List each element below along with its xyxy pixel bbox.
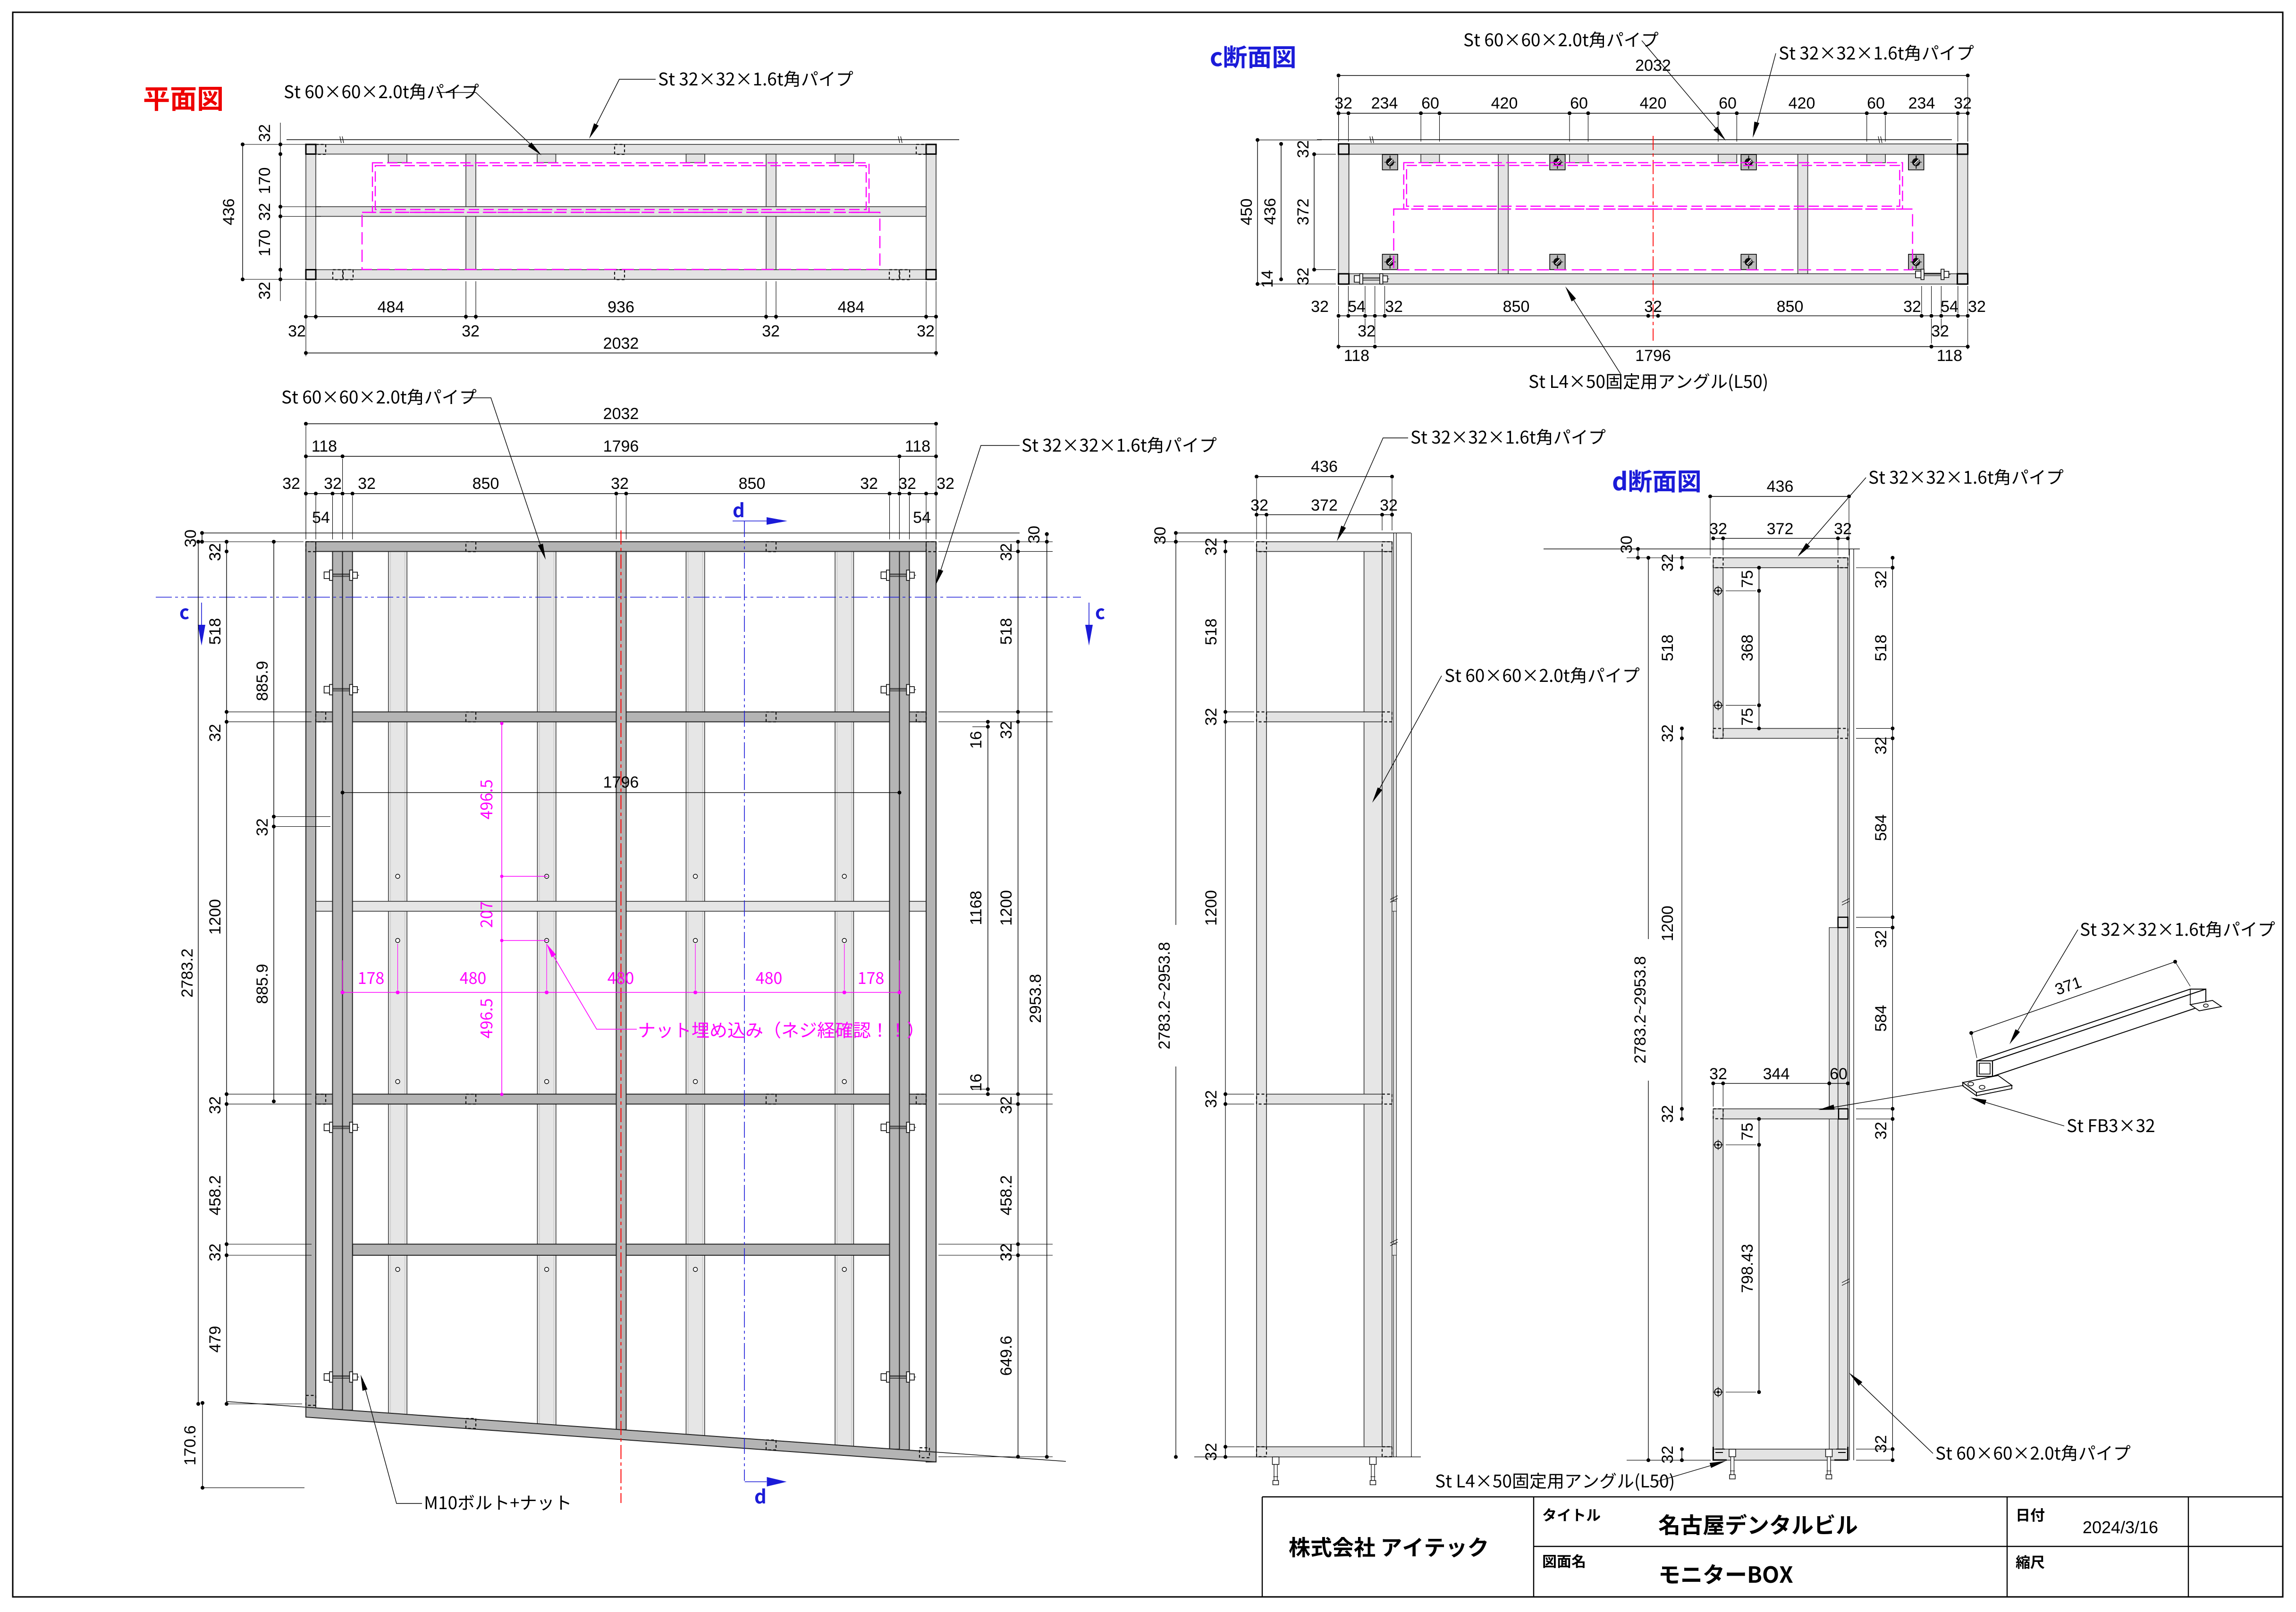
svg-text:850: 850 [739,475,766,493]
svg-text:885.9: 885.9 [253,964,271,1004]
svg-text:32: 32 [462,322,480,340]
svg-text:170: 170 [256,168,274,194]
svg-text:1796: 1796 [603,437,639,455]
svg-text:32: 32 [997,721,1015,739]
svg-text:1200: 1200 [997,890,1015,926]
svg-text:372: 372 [1311,496,1338,514]
svg-text:32: 32 [206,543,224,561]
svg-text:32: 32 [358,475,376,493]
svg-text:518: 518 [1202,619,1220,646]
svg-text:32: 32 [1380,496,1398,514]
svg-text:1796: 1796 [603,773,639,791]
svg-text:30: 30 [182,529,200,547]
svg-text:420: 420 [1640,94,1667,112]
svg-text:936: 936 [608,298,634,316]
svg-text:32: 32 [282,475,300,493]
svg-text:32: 32 [1709,1065,1727,1083]
svg-text:32: 32 [1294,140,1312,158]
svg-text:32: 32 [1202,1443,1220,1461]
svg-text:649.6: 649.6 [997,1335,1015,1376]
svg-text:118: 118 [312,437,337,455]
svg-text:234: 234 [1908,94,1935,112]
svg-text:420: 420 [1491,94,1518,112]
svg-text:54: 54 [1941,298,1958,316]
svg-text:32: 32 [206,724,224,742]
svg-text:518: 518 [1872,635,1890,662]
svg-text:1168: 1168 [967,890,985,925]
svg-text:32: 32 [1385,298,1403,316]
svg-text:518: 518 [1659,635,1677,662]
svg-text:32: 32 [1834,520,1852,538]
svg-text:32: 32 [288,322,306,340]
svg-text:32: 32 [253,818,271,836]
svg-text:75: 75 [1739,570,1756,588]
svg-text:32: 32 [1659,1446,1677,1464]
svg-text:32: 32 [1644,298,1662,316]
svg-text:32: 32 [324,475,342,493]
svg-text:60: 60 [1719,94,1737,112]
svg-text:32: 32 [1294,268,1312,285]
svg-text:54: 54 [913,509,931,527]
svg-text:54: 54 [312,509,330,527]
svg-text:30: 30 [1618,536,1636,554]
svg-text:479: 479 [206,1326,224,1353]
svg-text:30: 30 [1151,527,1169,545]
svg-text:32: 32 [1872,930,1890,948]
svg-text:14: 14 [1258,270,1276,288]
svg-text:32: 32 [206,1243,224,1261]
svg-text:2032: 2032 [603,335,639,353]
svg-text:16: 16 [967,1074,985,1091]
svg-text:458.2: 458.2 [206,1175,224,1215]
svg-text:372: 372 [1294,199,1312,226]
svg-text:436: 436 [220,199,238,226]
svg-text:32: 32 [1968,298,1986,316]
svg-text:885.9: 885.9 [253,661,271,701]
svg-text:368: 368 [1739,635,1756,662]
svg-text:32: 32 [1202,708,1220,726]
svg-text:32: 32 [206,1096,224,1114]
svg-text:32: 32 [1202,1090,1220,1108]
svg-text:32: 32 [937,475,954,493]
svg-text:2032: 2032 [1635,57,1671,75]
svg-text:584: 584 [1872,1005,1890,1032]
svg-text:60: 60 [1421,94,1439,112]
svg-text:344: 344 [1763,1065,1790,1083]
svg-text:118: 118 [1937,347,1962,365]
svg-text:436: 436 [1767,478,1794,495]
svg-text:372: 372 [1767,520,1794,538]
svg-text:32: 32 [256,282,274,300]
svg-text:32: 32 [1334,94,1352,112]
svg-text:798.43: 798.43 [1739,1244,1756,1293]
svg-text:32: 32 [1709,520,1727,538]
svg-text:2032: 2032 [603,405,639,423]
svg-text:484: 484 [838,298,865,316]
svg-text:2953.8: 2953.8 [1027,974,1045,1023]
svg-text:458.2: 458.2 [997,1175,1015,1215]
svg-text:32: 32 [898,475,916,493]
svg-text:436: 436 [1311,458,1338,476]
svg-text:32: 32 [1250,496,1268,514]
svg-text:32: 32 [1872,737,1890,755]
svg-text:2783.2~2953.8: 2783.2~2953.8 [1156,942,1173,1049]
svg-text:1200: 1200 [1202,890,1220,926]
svg-text:32: 32 [1311,298,1329,316]
svg-text:32: 32 [1872,1435,1890,1453]
svg-text:32: 32 [611,475,629,493]
svg-text:850: 850 [473,475,499,493]
svg-text:32: 32 [1659,724,1677,742]
svg-text:850: 850 [1503,298,1530,316]
svg-text:32: 32 [1358,322,1376,340]
svg-text:32: 32 [1931,322,1949,340]
svg-text:420: 420 [1789,94,1815,112]
svg-text:32: 32 [1872,1122,1890,1140]
svg-text:850: 850 [1777,298,1804,316]
svg-text:32: 32 [997,543,1015,561]
svg-text:32: 32 [1872,571,1890,588]
svg-text:1200: 1200 [1659,906,1677,941]
svg-text:2783.2: 2783.2 [178,949,196,998]
svg-text:584: 584 [1872,814,1890,841]
svg-text:234: 234 [1371,94,1398,112]
svg-text:32: 32 [860,475,878,493]
svg-text:118: 118 [1344,347,1369,365]
svg-text:1796: 1796 [1635,347,1671,365]
svg-text:118: 118 [905,437,930,455]
svg-text:32: 32 [917,322,935,340]
svg-text:1200: 1200 [206,899,224,935]
svg-text:32: 32 [256,203,274,221]
svg-text:75: 75 [1739,1123,1756,1141]
svg-text:60: 60 [1867,94,1885,112]
svg-text:32: 32 [1954,94,1972,112]
svg-text:484: 484 [378,298,405,316]
svg-text:32: 32 [1903,298,1921,316]
svg-text:2783.2~2953.8: 2783.2~2953.8 [1631,956,1649,1064]
svg-text:60: 60 [1570,94,1588,112]
svg-text:518: 518 [997,618,1015,645]
svg-text:32: 32 [256,124,274,142]
svg-text:32: 32 [762,322,780,340]
svg-text:16: 16 [967,731,985,749]
svg-text:518: 518 [206,618,224,645]
svg-text:170: 170 [256,230,274,257]
svg-text:32: 32 [1659,554,1677,572]
svg-text:54: 54 [1348,298,1366,316]
svg-text:75: 75 [1739,708,1756,726]
svg-text:32: 32 [1659,1105,1677,1123]
svg-text:450: 450 [1238,199,1256,226]
svg-text:32: 32 [997,1243,1015,1261]
svg-text:32: 32 [1202,538,1220,556]
svg-text:436: 436 [1261,198,1279,225]
svg-text:60: 60 [1830,1065,1848,1083]
svg-text:2024/3/16: 2024/3/16 [2083,1518,2158,1537]
svg-text:30: 30 [1025,526,1043,544]
svg-text:170.6: 170.6 [181,1425,199,1465]
svg-text:32: 32 [997,1096,1015,1114]
